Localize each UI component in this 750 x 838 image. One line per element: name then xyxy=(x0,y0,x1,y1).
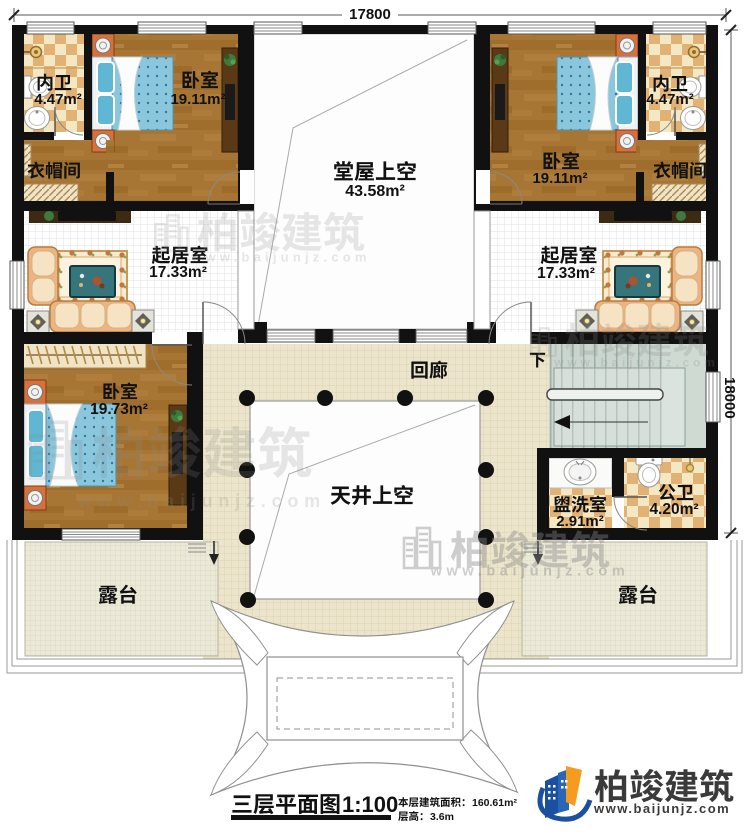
svg-text:4.47m²: 4.47m² xyxy=(646,91,694,108)
svg-text:www.baijunjz.com: www.baijunjz.com xyxy=(190,250,370,265)
svg-text:www.baijunjz.com: www.baijunjz.com xyxy=(430,564,630,580)
svg-text:17.33m²: 17.33m² xyxy=(149,264,207,281)
svg-text:19.11m²: 19.11m² xyxy=(170,91,225,108)
svg-text:17.33m²: 17.33m² xyxy=(537,265,595,282)
svg-text:3.6m: 3.6m xyxy=(430,811,454,823)
svg-text:www.baijunjz.com: www.baijunjz.com xyxy=(593,801,730,816)
svg-text:160.61m²: 160.61m² xyxy=(472,797,517,809)
svg-text:19.11m²: 19.11m² xyxy=(532,170,587,187)
svg-text:17800: 17800 xyxy=(349,6,391,23)
svg-text:www.baijunjz.com: www.baijunjz.com xyxy=(553,356,718,370)
svg-text:4.47m²: 4.47m² xyxy=(34,91,82,108)
svg-text:www.baijunjz.com: www.baijunjz.com xyxy=(77,491,326,511)
svg-text:4.20m²: 4.20m² xyxy=(649,501,698,518)
svg-text:1:100: 1:100 xyxy=(342,792,398,817)
svg-text:18000: 18000 xyxy=(721,377,738,419)
svg-text:43.58m²: 43.58m² xyxy=(345,183,405,200)
svg-text:19.73m²: 19.73m² xyxy=(90,401,148,418)
svg-text:2.91m²: 2.91m² xyxy=(556,513,604,530)
